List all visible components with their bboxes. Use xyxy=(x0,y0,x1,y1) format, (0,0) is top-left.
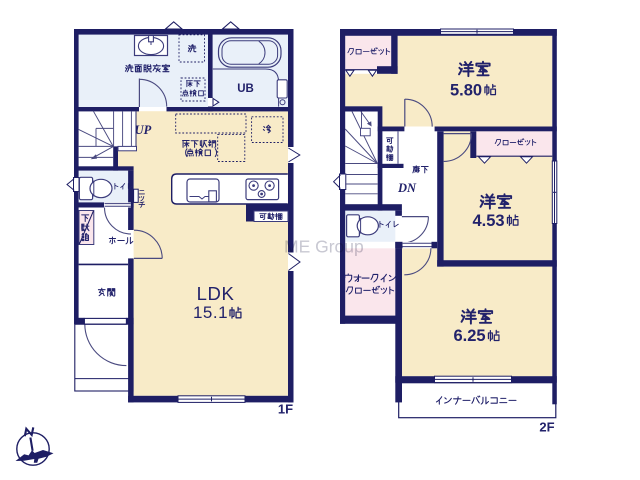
svg-text:5.80: 5.80 xyxy=(450,81,482,99)
svg-text:2F: 2F xyxy=(539,420,554,435)
svg-text:1F: 1F xyxy=(278,402,293,417)
svg-text:LDK: LDK xyxy=(197,283,235,304)
svg-text:UB: UB xyxy=(237,83,254,95)
svg-text:UP: UP xyxy=(135,123,152,137)
svg-text:ME Group: ME Group xyxy=(284,236,364,256)
svg-text:4.53: 4.53 xyxy=(472,212,504,230)
svg-text:15.1: 15.1 xyxy=(193,303,228,322)
svg-text:DN: DN xyxy=(397,181,417,195)
svg-text:6.25: 6.25 xyxy=(453,327,485,345)
